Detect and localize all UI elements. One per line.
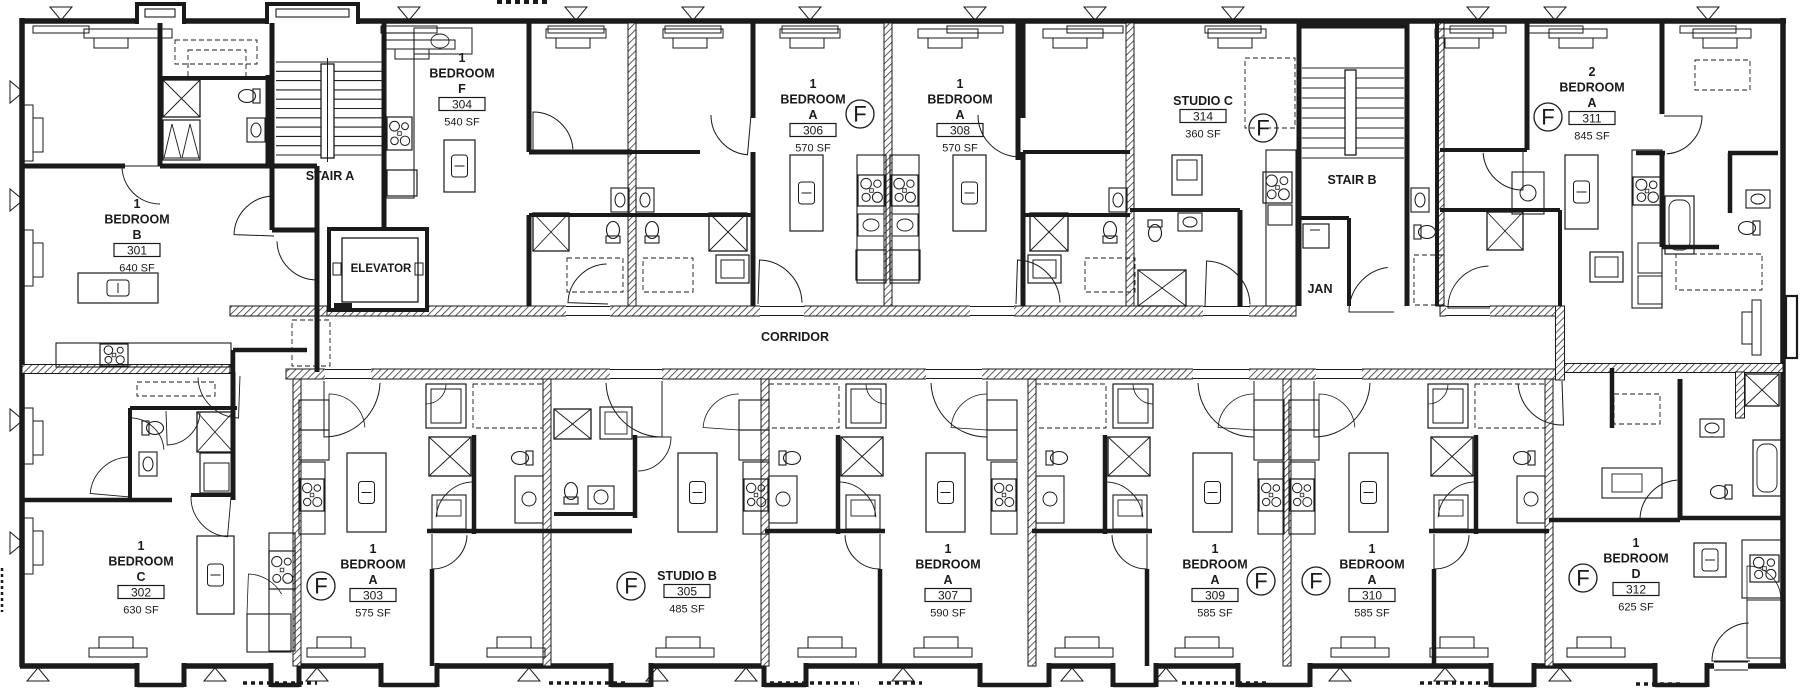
svg-text:1: 1	[957, 77, 964, 91]
svg-text:360 SF: 360 SF	[1185, 129, 1221, 141]
svg-text:F: F	[624, 574, 637, 599]
svg-text:314: 314	[1193, 110, 1213, 124]
svg-text:F: F	[1309, 569, 1322, 594]
svg-text:1: 1	[1369, 542, 1376, 556]
svg-text:A: A	[955, 108, 964, 122]
svg-text:F: F	[1256, 116, 1269, 141]
svg-text:B: B	[132, 228, 141, 242]
svg-text:BEDROOM: BEDROOM	[927, 93, 992, 107]
svg-text:485 SF: 485 SF	[669, 604, 705, 616]
svg-text:C: C	[136, 570, 145, 584]
svg-text:F: F	[853, 102, 866, 127]
svg-text:BEDROOM: BEDROOM	[340, 558, 405, 572]
svg-text:ELEVATOR: ELEVATOR	[351, 263, 412, 275]
svg-text:630 SF: 630 SF	[123, 605, 159, 617]
svg-text:JAN: JAN	[1307, 282, 1332, 296]
svg-text:F: F	[314, 574, 327, 599]
svg-text:307: 307	[938, 589, 958, 603]
svg-text:F: F	[1541, 105, 1554, 130]
svg-text:303: 303	[363, 589, 383, 603]
svg-text:308: 308	[950, 124, 970, 138]
svg-text:585 SF: 585 SF	[1197, 608, 1233, 620]
svg-text:A: A	[1587, 96, 1596, 110]
svg-text:845 SF: 845 SF	[1574, 131, 1610, 143]
svg-text:1: 1	[138, 539, 145, 553]
svg-text:A: A	[1210, 573, 1219, 587]
svg-text:310: 310	[1362, 589, 1382, 603]
svg-text:625 SF: 625 SF	[1618, 602, 1654, 614]
svg-text:570 SF: 570 SF	[942, 143, 978, 155]
svg-text:570 SF: 570 SF	[795, 143, 831, 155]
svg-text:311: 311	[1582, 112, 1601, 126]
svg-text:F: F	[1576, 566, 1589, 591]
svg-text:309: 309	[1205, 589, 1225, 603]
svg-text:1: 1	[134, 197, 141, 211]
svg-text:D: D	[1631, 567, 1640, 581]
svg-text:1: 1	[945, 542, 952, 556]
svg-text:BEDROOM: BEDROOM	[104, 213, 169, 227]
svg-text:BEDROOM: BEDROOM	[1182, 558, 1247, 572]
svg-text:1: 1	[1633, 536, 1640, 550]
svg-text:F: F	[458, 82, 466, 96]
svg-text:585 SF: 585 SF	[1354, 608, 1390, 620]
svg-text:1: 1	[459, 51, 466, 65]
svg-text:BEDROOM: BEDROOM	[1559, 81, 1624, 95]
svg-text:BEDROOM: BEDROOM	[1603, 552, 1668, 566]
svg-text:STUDIO C: STUDIO C	[1173, 94, 1233, 108]
svg-text:STUDIO B: STUDIO B	[657, 569, 717, 583]
svg-text:F: F	[1254, 569, 1267, 594]
svg-text:BEDROOM: BEDROOM	[429, 67, 494, 81]
svg-text:540 SF: 540 SF	[444, 117, 480, 129]
svg-text:A: A	[368, 573, 377, 587]
svg-text:2: 2	[1589, 65, 1596, 79]
svg-text:CORRIDOR: CORRIDOR	[761, 330, 829, 344]
svg-text:312: 312	[1626, 583, 1646, 597]
svg-text:301: 301	[127, 244, 147, 258]
svg-text:1: 1	[1212, 542, 1219, 556]
svg-text:BEDROOM: BEDROOM	[915, 558, 980, 572]
svg-text:302: 302	[131, 586, 151, 600]
svg-text:1: 1	[810, 77, 817, 91]
svg-text:640 SF: 640 SF	[119, 263, 155, 275]
svg-text:A: A	[943, 573, 952, 587]
svg-text:305: 305	[677, 585, 697, 599]
svg-text:304: 304	[452, 98, 472, 112]
svg-text:BEDROOM: BEDROOM	[1339, 558, 1404, 572]
svg-text:A: A	[808, 108, 817, 122]
svg-text:STAIR B: STAIR B	[1327, 173, 1376, 187]
svg-text:BEDROOM: BEDROOM	[780, 93, 845, 107]
svg-text:A: A	[1367, 573, 1376, 587]
svg-text:590 SF: 590 SF	[930, 608, 966, 620]
svg-text:1: 1	[370, 542, 377, 556]
svg-text:575 SF: 575 SF	[355, 608, 391, 620]
svg-text:306: 306	[803, 124, 823, 138]
svg-text:BEDROOM: BEDROOM	[108, 555, 173, 569]
svg-text:STAIR A: STAIR A	[306, 169, 355, 183]
